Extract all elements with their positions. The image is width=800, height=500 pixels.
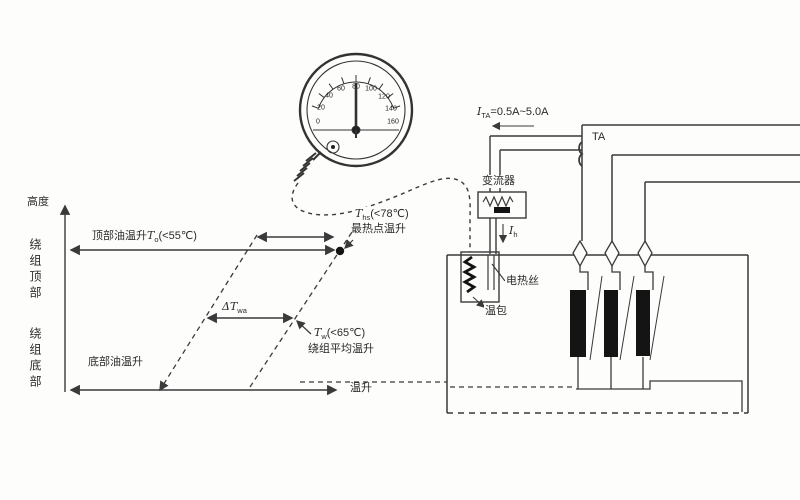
y-axis-winding-bottom: 绕组底部 (28, 327, 41, 409)
gauge-needle (352, 83, 360, 138)
winding-c (636, 290, 650, 356)
delta-twa-label: ΔTwa (222, 300, 247, 317)
ta-current-label: ITA=0.5A~5.0A (477, 105, 549, 122)
top-oil-text: 顶部油温升 (92, 230, 147, 242)
ta-current-value: =0.5A~5.0A (490, 106, 548, 118)
diagram-linework (0, 0, 800, 500)
winding-a (570, 290, 586, 357)
heater-current-subscript: h (513, 230, 517, 239)
dial-number-60: 60 (337, 86, 345, 93)
hot-spot-name-label: 最热点温升 (351, 223, 406, 236)
winding-avg-leader (297, 321, 311, 334)
winding-connections (576, 266, 742, 412)
hot-spot-symbol-label: Ths(<78℃) (354, 207, 410, 224)
phase-leads (579, 125, 800, 241)
gauge-stem (294, 152, 321, 181)
ta-label: TA (592, 131, 605, 144)
y-axis-winding-top: 绕组顶部 (28, 238, 41, 320)
winding-avg-symbol-label: Tw(<65℃) (314, 326, 365, 343)
windings (570, 290, 650, 357)
hot-spot-condition: (<78℃) (370, 208, 408, 220)
thermo-bulb-label: 温包 (484, 305, 508, 318)
y-axis-label: 高度 (27, 196, 49, 209)
converter-winding-symbol (483, 197, 513, 206)
converter-terminal (494, 207, 510, 213)
bottom-oil-rise-label: 底部油温升 (88, 356, 143, 369)
temperature-gauge (294, 54, 412, 181)
gauge-adjuster (327, 141, 339, 153)
converter-circuit (478, 126, 582, 254)
x-axis-label: 温升 (350, 382, 372, 395)
dial-number-120: 120 (378, 94, 390, 101)
diagram-page: 高度 绕组顶部 绕组底部 顶部油温升To(<55℃) Ths(<78℃) 最热点… (0, 0, 800, 500)
delta-subscript: wa (237, 306, 247, 315)
dial-number-160: 160 (387, 119, 399, 126)
winding-avg-name-label: 绕组平均温升 (308, 343, 374, 356)
winding-b (604, 290, 618, 357)
dial-number-80: 80 (352, 84, 360, 91)
heater-current-label: Ih (509, 224, 518, 241)
heater-wire-label: 电热丝 (505, 275, 540, 288)
winding-avg-condition: (<65℃) (327, 327, 365, 339)
hot-spot-point (336, 247, 344, 255)
top-oil-rise-label: 顶部油温升To(<55℃) (92, 229, 197, 246)
delta-symbol: ΔT (222, 300, 237, 313)
thermo-bulb-pocket (461, 252, 505, 307)
dial-number-20: 20 (317, 105, 325, 112)
dial-number-100: 100 (365, 86, 377, 93)
dial-number-140: 140 (385, 106, 397, 113)
converter-label: 变流器 (481, 175, 516, 188)
bushings (573, 241, 652, 266)
heater-coil (465, 257, 474, 292)
dial-number-40: 40 (325, 93, 333, 100)
dial-number-0: 0 (316, 119, 320, 126)
top-oil-condition: (<55℃) (159, 230, 197, 242)
